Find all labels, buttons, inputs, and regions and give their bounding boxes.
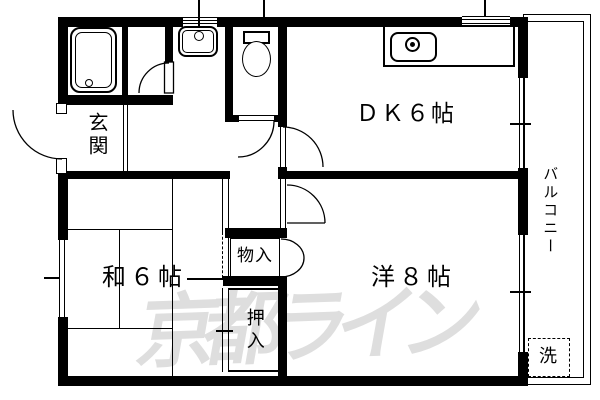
entrance-door-arc <box>13 110 62 159</box>
room-label-balcony: バルコニー <box>541 166 558 256</box>
room-label-dk: ＤＫ６帖 <box>356 101 456 127</box>
yoshitsu-door-arc <box>287 185 325 223</box>
room-label-youshitsu: 洋８帖 <box>371 264 455 292</box>
room-label-oshiire: 押入 <box>243 308 264 354</box>
toilet-door-arc <box>238 121 274 157</box>
washroom-door-leaf <box>165 62 174 93</box>
room-label-monoire: 物入 <box>237 247 273 267</box>
monoire-door-arc <box>281 239 304 258</box>
room-label-washitsu: 和６帖 <box>102 264 186 292</box>
room-label-genkan: 玄関 <box>85 112 108 158</box>
floor-plan: 京都ライン <box>0 0 600 400</box>
door-arcs-layer <box>0 0 600 400</box>
dk-door-arc <box>283 127 323 167</box>
room-label-laundry: 洗 <box>539 347 557 368</box>
monoire-door-arc <box>281 258 304 277</box>
